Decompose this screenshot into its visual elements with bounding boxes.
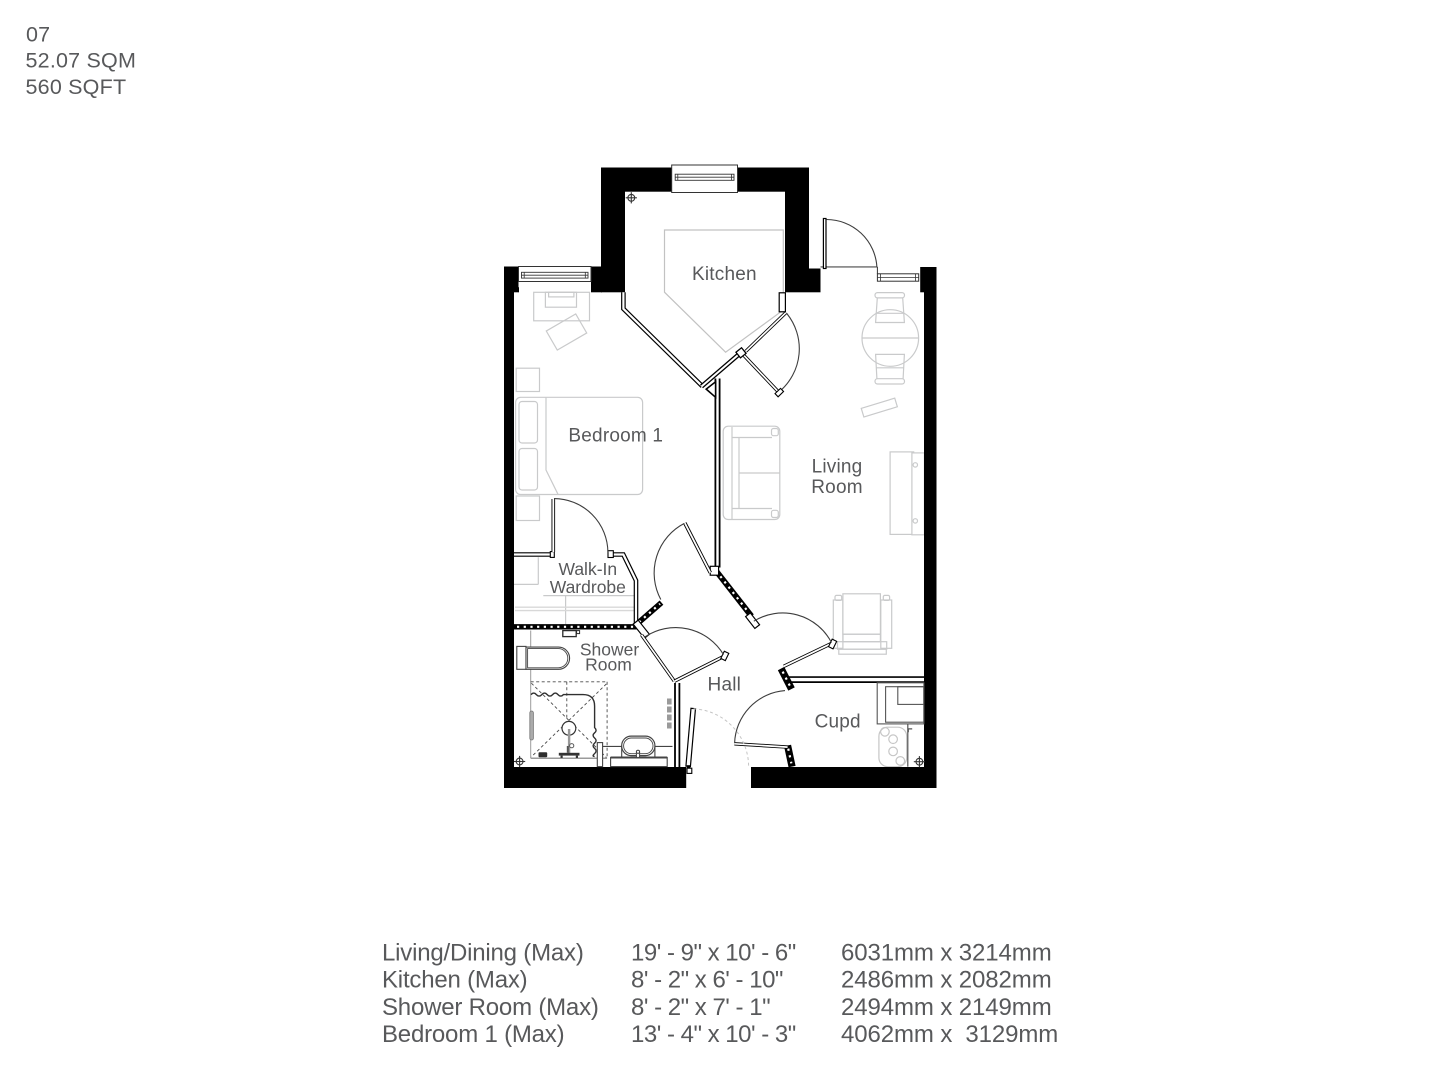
svg-text:52.07 SQM: 52.07 SQM	[26, 48, 137, 72]
svg-text:Kitchen (Max): Kitchen (Max)	[382, 967, 527, 994]
svg-text:4062mm x 3129mm: 4062mm x 3129mm	[841, 1021, 1058, 1048]
svg-text:6031mm x 3214mm: 6031mm x 3214mm	[841, 940, 1052, 967]
svg-text:Wardrobe: Wardrobe	[550, 577, 626, 597]
svg-text:Room: Room	[585, 654, 632, 674]
svg-text:Shower Room (Max): Shower Room (Max)	[382, 994, 599, 1021]
svg-text:2486mm x 2082mm: 2486mm x 2082mm	[841, 967, 1052, 994]
svg-text:Cupd: Cupd	[815, 712, 861, 733]
svg-text:8' - 2" x 6' - 10": 8' - 2" x 6' - 10"	[631, 967, 783, 994]
svg-text:Hall: Hall	[708, 675, 742, 696]
svg-text:Room: Room	[811, 477, 862, 498]
svg-text:Living/Dining (Max): Living/Dining (Max)	[382, 940, 584, 967]
svg-text:Living: Living	[812, 457, 863, 478]
svg-text:Bedroom 1 (Max): Bedroom 1 (Max)	[382, 1021, 564, 1048]
svg-text:2494mm x 2149mm: 2494mm x 2149mm	[841, 994, 1052, 1021]
svg-text:Kitchen: Kitchen	[692, 264, 757, 285]
svg-text:Walk-In: Walk-In	[558, 559, 617, 579]
svg-text:560 SQFT: 560 SQFT	[26, 75, 127, 99]
svg-text:8' - 2" x 7' - 1": 8' - 2" x 7' - 1"	[631, 994, 770, 1021]
svg-text:13' - 4" x 10' - 3": 13' - 4" x 10' - 3"	[631, 1021, 796, 1048]
svg-text:19' - 9" x 10' - 6": 19' - 9" x 10' - 6"	[631, 940, 796, 967]
svg-text:Bedroom 1: Bedroom 1	[568, 425, 663, 446]
svg-text:07: 07	[26, 23, 50, 47]
